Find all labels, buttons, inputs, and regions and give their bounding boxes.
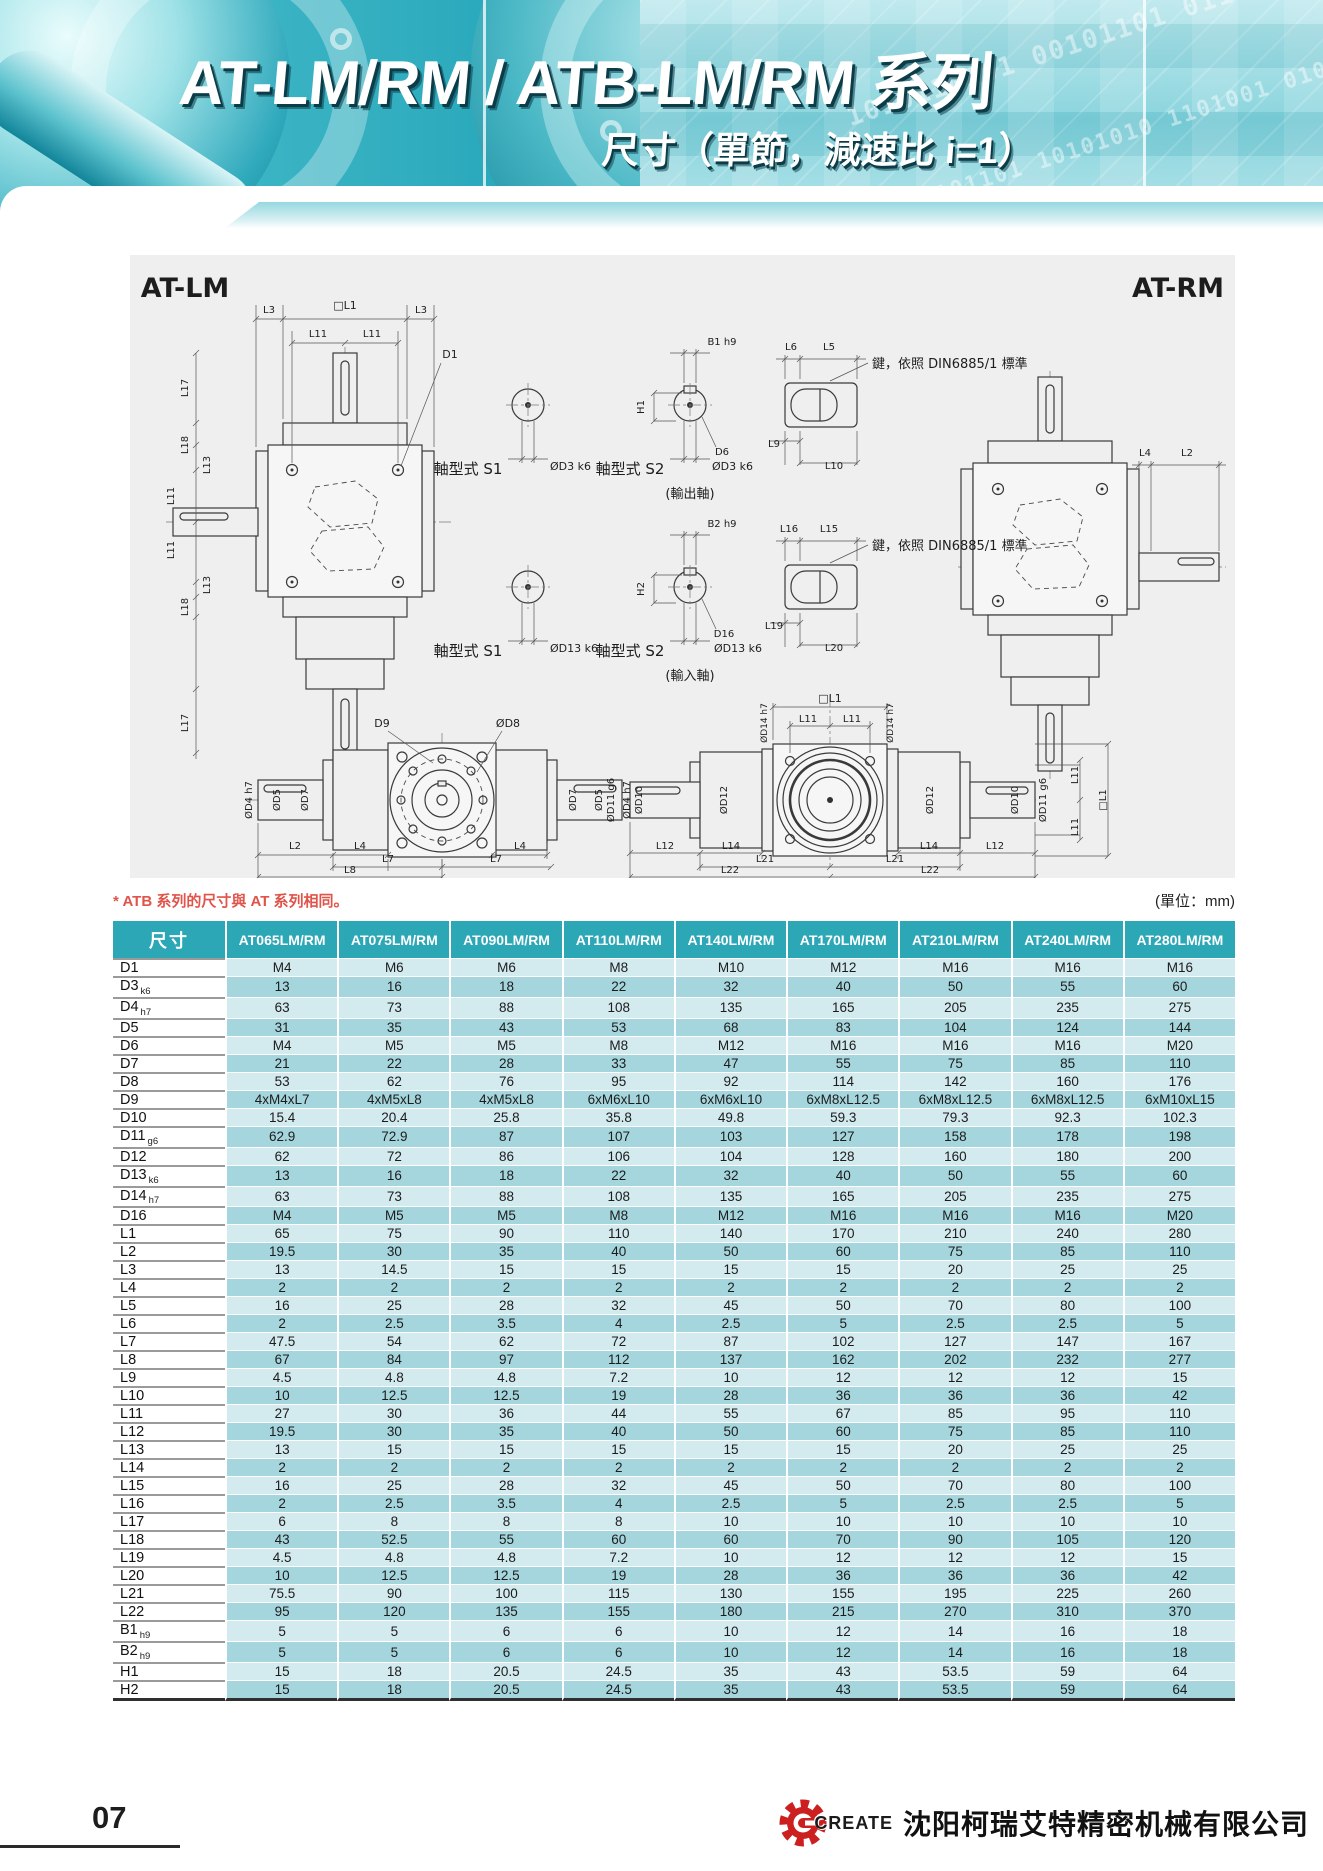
dimension-label: L4 <box>113 1278 225 1296</box>
dimension-value: 147 <box>1011 1332 1123 1350</box>
dimension-value: 5 <box>786 1494 898 1512</box>
dimension-value: 115 <box>562 1584 674 1602</box>
dimension-value: 128 <box>786 1147 898 1165</box>
dimension-value: 31 <box>225 1018 337 1036</box>
dimension-value: 55 <box>449 1530 561 1548</box>
dimension-value: 144 <box>1123 1018 1235 1036</box>
dimension-value: 8 <box>337 1512 449 1530</box>
table-row: L2295120135155180215270310370 <box>113 1602 1235 1620</box>
drawing-dim-label: □L1 <box>1098 789 1109 810</box>
dimension-value: 63 <box>225 1186 337 1207</box>
dimension-value: 162 <box>786 1350 898 1368</box>
dimension-value: 35 <box>449 1242 561 1260</box>
drawing-dim-label: L11 <box>363 329 381 340</box>
dimension-value: 50 <box>898 1165 1010 1186</box>
drawing-dim-label: L11 <box>799 714 817 725</box>
drawing-dim-label: 軸型式 S2 <box>596 642 665 660</box>
table-row: L1622.53.542.552.52.55 <box>113 1494 1235 1512</box>
dimension-value: 4 <box>562 1494 674 1512</box>
dimension-value: 54 <box>337 1332 449 1350</box>
dimension-value: 35 <box>674 1662 786 1680</box>
dimension-value: 3.5 <box>449 1494 561 1512</box>
drawing-dim-label: ØD7 <box>567 789 579 811</box>
table-row: D14h7637388108135165205235275 <box>113 1186 1235 1207</box>
dimension-value: 70 <box>898 1476 1010 1494</box>
dimension-value: 32 <box>562 1476 674 1494</box>
dimension-value: 32 <box>674 1165 786 1186</box>
dimension-value: 62.9 <box>225 1126 337 1147</box>
dimension-value: M8 <box>562 1036 674 1054</box>
dimension-value: 15 <box>337 1440 449 1458</box>
dimension-value: 5 <box>337 1620 449 1641</box>
dimension-value: 64 <box>1123 1680 1235 1701</box>
dimension-value: 90 <box>449 1224 561 1242</box>
dimension-value: M6 <box>337 958 449 976</box>
dimension-value: 60 <box>1123 976 1235 997</box>
shaft-section-input <box>506 531 716 645</box>
drawing-dim-label: L6 <box>785 342 797 353</box>
dimension-label: L20 <box>113 1566 225 1584</box>
dimension-value: 8 <box>449 1512 561 1530</box>
dimension-value: 30 <box>337 1404 449 1422</box>
dimension-value: 110 <box>1123 1404 1235 1422</box>
dimension-value: 4.8 <box>449 1368 561 1386</box>
dimension-value: 110 <box>1123 1422 1235 1440</box>
dimension-value: 28 <box>449 1476 561 1494</box>
dimension-label: D13k6 <box>113 1165 225 1186</box>
dimension-value: 18 <box>1123 1641 1235 1662</box>
dimension-value: 5 <box>1123 1314 1235 1332</box>
drawing-dim-label: L13 <box>202 576 213 594</box>
dimension-value: 16 <box>337 976 449 997</box>
table-row: D12627286106104128160180200 <box>113 1147 1235 1165</box>
atrm-front-view <box>958 371 1226 779</box>
dimension-value: 100 <box>449 1584 561 1602</box>
dimension-label: D8 <box>113 1072 225 1090</box>
dimension-label: L8 <box>113 1350 225 1368</box>
drawing-dim-label: 軸型式 S1 <box>434 460 503 478</box>
table-row: D4h7637388108135165205235275 <box>113 997 1235 1018</box>
dimension-value: 16 <box>1011 1620 1123 1641</box>
dimension-value: 85 <box>898 1404 1010 1422</box>
drawing-dim-label: L11 <box>1070 818 1081 836</box>
drawing-dim-label: D16 <box>714 629 734 640</box>
table-header-row: 尺寸AT065LM/RMAT075LM/RMAT090LM/RMAT110LM/… <box>113 921 1235 958</box>
dimension-value: 7.2 <box>562 1548 674 1566</box>
drawing-dim-label: ØD3 k6 <box>712 460 753 473</box>
dimension-value: 35 <box>337 1018 449 1036</box>
dimension-value: 25.8 <box>449 1108 561 1126</box>
dimension-value: 6xM8xL12.5 <box>898 1090 1010 1108</box>
dimension-label: D11g6 <box>113 1126 225 1147</box>
dimension-value: 4.8 <box>449 1548 561 1566</box>
col-header-model: AT090LM/RM <box>449 921 561 958</box>
drawing-dim-label: ØD5 <box>593 789 605 811</box>
dimension-value: 35 <box>674 1680 786 1701</box>
dimension-value: 15 <box>449 1440 561 1458</box>
dimension-label: L22 <box>113 1602 225 1620</box>
dimension-value: 198 <box>1123 1126 1235 1147</box>
dimension-value: 80 <box>1011 1296 1123 1314</box>
dimension-value: 12 <box>786 1548 898 1566</box>
dimension-value: 36 <box>786 1386 898 1404</box>
dimension-value: 178 <box>1011 1126 1123 1147</box>
dimension-label: D5 <box>113 1018 225 1036</box>
dimension-value: 103 <box>674 1126 786 1147</box>
dimension-label: L9 <box>113 1368 225 1386</box>
dimension-value: M16 <box>1011 958 1123 976</box>
dimension-value: 137 <box>674 1350 786 1368</box>
dimension-value: 2 <box>898 1278 1010 1296</box>
drawing-dim-label: L13 <box>202 456 213 474</box>
dimension-value: 2 <box>337 1278 449 1296</box>
drawing-dim-label: L11 <box>309 329 327 340</box>
dimension-value: 106 <box>562 1147 674 1165</box>
drawing-dim-label: ØD8 <box>496 717 520 730</box>
dimension-value: 21 <box>225 1054 337 1072</box>
table-row: L2175.590100115130155195225260 <box>113 1584 1235 1602</box>
dimension-value: 202 <box>898 1350 1010 1368</box>
dimension-value: 50 <box>674 1422 786 1440</box>
table-row: H2151820.524.5354353.55964 <box>113 1680 1235 1701</box>
table-row: L4222222222 <box>113 1278 1235 1296</box>
drawing-dim-label: ØD11 g6 <box>605 778 617 822</box>
dimension-label: L13 <box>113 1440 225 1458</box>
dimension-value: 6 <box>562 1641 674 1662</box>
dimension-value: 72.9 <box>337 1126 449 1147</box>
dimension-value: 73 <box>337 997 449 1018</box>
dimension-label: D14h7 <box>113 1186 225 1207</box>
dimension-value: 205 <box>898 997 1010 1018</box>
dimension-value: 36 <box>1011 1386 1123 1404</box>
dimension-value: 33 <box>562 1054 674 1072</box>
drawing-dim-label: B1 h9 <box>707 337 736 348</box>
dimension-value: M16 <box>898 1036 1010 1054</box>
dimension-value: 210 <box>898 1224 1010 1242</box>
dimension-value: 100 <box>1123 1296 1235 1314</box>
dimension-value: 260 <box>1123 1584 1235 1602</box>
drawing-dim-label: H1 <box>636 400 647 414</box>
dimension-value: 35 <box>449 1422 561 1440</box>
dimension-value: 18 <box>337 1680 449 1701</box>
dimension-value: 72 <box>337 1147 449 1165</box>
col-header-model: AT110LM/RM <box>562 921 674 958</box>
dimension-value: 60 <box>674 1530 786 1548</box>
dimension-value: 142 <box>898 1072 1010 1090</box>
dimension-value: 2 <box>1011 1458 1123 1476</box>
dimension-value: 155 <box>786 1584 898 1602</box>
dimension-value: 50 <box>898 976 1010 997</box>
drawing-dim-label: L12 <box>986 841 1004 852</box>
dimension-value: M12 <box>674 1206 786 1224</box>
table-row: B2h955661012141618 <box>113 1641 1235 1662</box>
dimension-value: 50 <box>786 1476 898 1494</box>
table-row: D85362769592114142160176 <box>113 1072 1235 1090</box>
table-row: L219.530354050607585110 <box>113 1242 1235 1260</box>
dimension-value: 10 <box>898 1512 1010 1530</box>
photo-seam <box>1143 0 1146 188</box>
dimension-value: 180 <box>1011 1147 1123 1165</box>
dimension-value: 3.5 <box>449 1314 561 1332</box>
dimension-label: L18 <box>113 1530 225 1548</box>
dimension-value: 160 <box>1011 1072 1123 1090</box>
drawing-dim-label: L3 <box>415 305 427 316</box>
dimension-value: M16 <box>1011 1036 1123 1054</box>
dimension-value: 63 <box>225 997 337 1018</box>
dimension-value: 15.4 <box>225 1108 337 1126</box>
dimension-value: 75 <box>898 1242 1010 1260</box>
dimension-value: 22 <box>562 1165 674 1186</box>
dimension-label: L14 <box>113 1458 225 1476</box>
table-row: H1151820.524.5354353.55964 <box>113 1662 1235 1680</box>
dimension-value: 16 <box>337 1165 449 1186</box>
drawing-dim-label: D9 <box>374 717 389 730</box>
drawing-dim-label: D1 <box>442 348 457 361</box>
dimension-value: 20.4 <box>337 1108 449 1126</box>
drawing-dim-label: L22 <box>721 865 739 876</box>
dimension-value: 72 <box>562 1332 674 1350</box>
dimension-value: 10 <box>674 1512 786 1530</box>
table-row: D13k6131618223240505560 <box>113 1165 1235 1186</box>
table-row: B1h955661012141618 <box>113 1620 1235 1641</box>
dimension-value: 112 <box>562 1350 674 1368</box>
dimension-value: 16 <box>1011 1641 1123 1662</box>
dimension-value: 87 <box>674 1332 786 1350</box>
dimension-value: 40 <box>562 1422 674 1440</box>
dimension-value: M5 <box>337 1206 449 1224</box>
dimension-value: 180 <box>674 1602 786 1620</box>
dimension-value: 105 <box>1011 1530 1123 1548</box>
table-row: D3k6131618223240505560 <box>113 976 1235 997</box>
dimension-value: 59.3 <box>786 1108 898 1126</box>
dimension-value: 127 <box>786 1126 898 1147</box>
dimension-value: 14 <box>898 1641 1010 1662</box>
dimension-value: 10 <box>674 1368 786 1386</box>
dimension-value: 2 <box>674 1458 786 1476</box>
dimension-value: 110 <box>562 1224 674 1242</box>
dimension-value: 10 <box>225 1566 337 1584</box>
table-row: L13131515151515202525 <box>113 1440 1235 1458</box>
dimension-value: 20.5 <box>449 1680 561 1701</box>
dimension-value: 12 <box>1011 1548 1123 1566</box>
drawing-dim-label: L12 <box>656 841 674 852</box>
dimension-value: 68 <box>674 1018 786 1036</box>
dimension-value: 5 <box>337 1641 449 1662</box>
dimension-label: L3 <box>113 1260 225 1278</box>
dimension-value: 13 <box>225 976 337 997</box>
dimension-value: M4 <box>225 1036 337 1054</box>
dimension-label: L6 <box>113 1314 225 1332</box>
drawing-dim-label: L4 <box>354 841 366 852</box>
drawing-dim-label: L4 <box>514 841 526 852</box>
dimension-value: 2 <box>1123 1278 1235 1296</box>
dimension-value: 12 <box>786 1620 898 1641</box>
dimension-value: 85 <box>1011 1422 1123 1440</box>
drawing-dim-label: L21 <box>756 854 774 865</box>
dimension-value: 95 <box>562 1072 674 1090</box>
dimension-value: 10 <box>225 1386 337 1404</box>
dimension-value: 40 <box>562 1242 674 1260</box>
dimension-value: 12 <box>786 1641 898 1662</box>
dimension-value: 12 <box>898 1548 1010 1566</box>
drawing-dim-label: ØD10 <box>1009 786 1021 814</box>
dimension-value: 15 <box>562 1260 674 1278</box>
dimension-label: D6 <box>113 1036 225 1054</box>
dimension-value: 62 <box>225 1147 337 1165</box>
dimension-value: 43 <box>786 1680 898 1701</box>
drawing-dim-label: L10 <box>825 461 843 472</box>
dimension-value: 2 <box>786 1278 898 1296</box>
drawing-dim-label: L4 <box>1139 448 1151 459</box>
dimension-label: L19 <box>113 1548 225 1566</box>
dimension-value: 2 <box>674 1278 786 1296</box>
page-subtitle: 尺寸（單節，減速比 i=1） <box>468 120 1037 174</box>
drawing-dim-label: 軸型式 S2 <box>596 460 665 478</box>
drawing-dim-label: □L1 <box>333 299 357 312</box>
dimension-value: 53 <box>562 1018 674 1036</box>
dimension-value: 16 <box>225 1296 337 1314</box>
dimension-value: M16 <box>1011 1206 1123 1224</box>
dimension-value: 25 <box>1011 1440 1123 1458</box>
dimension-value: 2 <box>562 1458 674 1476</box>
drawing-dim-label: ØD4 h7 <box>243 781 255 819</box>
dimension-label: L21 <box>113 1584 225 1602</box>
dimension-value: 370 <box>1123 1602 1235 1620</box>
drawing-dim-label: L2 <box>289 841 301 852</box>
dimension-value: 92.3 <box>1011 1108 1123 1126</box>
dimension-value: 6 <box>449 1641 561 1662</box>
dimension-value: 84 <box>337 1350 449 1368</box>
atlm-front-view <box>166 305 452 767</box>
dimension-label: D16 <box>113 1206 225 1224</box>
dimension-value: 13 <box>225 1440 337 1458</box>
dimension-value: 4xM5xL8 <box>449 1090 561 1108</box>
table-row: L201012.512.5192836363642 <box>113 1566 1235 1584</box>
dimension-value: 12 <box>1011 1368 1123 1386</box>
dimension-value: M4 <box>225 958 337 976</box>
dimension-value: 5 <box>1123 1494 1235 1512</box>
dimension-value: 158 <box>898 1126 1010 1147</box>
dimension-value: 165 <box>786 997 898 1018</box>
table-row: L151625283245507080100 <box>113 1476 1235 1494</box>
dimension-value: 102 <box>786 1332 898 1350</box>
col-header-model: AT240LM/RM <box>1011 921 1123 958</box>
dimension-value: M4 <box>225 1206 337 1224</box>
dimension-value: 30 <box>337 1242 449 1260</box>
dimension-value: 53 <box>225 1072 337 1090</box>
dimension-value: 80 <box>1011 1476 1123 1494</box>
dimension-value: 35.8 <box>562 1108 674 1126</box>
drawing-dim-label: ØD12 <box>924 786 936 814</box>
dimension-value: 235 <box>1011 1186 1123 1207</box>
dimension-value: 167 <box>1123 1332 1235 1350</box>
dimension-value: 42 <box>1123 1566 1235 1584</box>
page-number: 07 <box>92 1800 126 1836</box>
dimension-label: L16 <box>113 1494 225 1512</box>
dimension-value: 75 <box>898 1422 1010 1440</box>
dimension-value: 19.5 <box>225 1242 337 1260</box>
dimension-value: M20 <box>1123 1036 1235 1054</box>
dimension-label: L7 <box>113 1332 225 1350</box>
dimension-value: M12 <box>786 958 898 976</box>
company-name: 沈阳柯瑞艾特精密机械有限公司 <box>903 1803 1309 1843</box>
dimension-value: 205 <box>898 1186 1010 1207</box>
dimension-value: 2 <box>786 1458 898 1476</box>
drawing-dim-label: L18 <box>180 598 191 616</box>
dimension-value: 79.3 <box>898 1108 1010 1126</box>
table-row: L194.54.84.87.21012121215 <box>113 1548 1235 1566</box>
dimension-value: 2.5 <box>674 1314 786 1332</box>
dimension-value: 10 <box>674 1641 786 1662</box>
dimension-value: 67 <box>786 1404 898 1422</box>
dimension-value: 2.5 <box>674 1494 786 1512</box>
drawing-dim-label: L7 <box>490 854 502 865</box>
dimension-value: 28 <box>449 1296 561 1314</box>
dimension-label: L12 <box>113 1422 225 1440</box>
dimension-value: 49.8 <box>674 1108 786 1126</box>
col-header-model: AT210LM/RM <box>898 921 1010 958</box>
drawing-dim-label: L14 <box>722 841 740 852</box>
drawing-dim-label: L11 <box>166 541 177 559</box>
drawing-dim-label: H2 <box>636 582 647 596</box>
drawing-dim-label: ØD12 <box>718 786 730 814</box>
drawing-dim-label: L11 <box>843 714 861 725</box>
dimension-value: 70 <box>786 1530 898 1548</box>
dimension-value: 73 <box>337 1186 449 1207</box>
dimension-value: 10 <box>1011 1512 1123 1530</box>
dimension-value: 2 <box>1011 1278 1123 1296</box>
dimension-value: 22 <box>562 976 674 997</box>
dimension-value: 2 <box>898 1458 1010 1476</box>
col-header-model: AT075LM/RM <box>337 921 449 958</box>
dimension-value: 10 <box>1123 1512 1235 1530</box>
drawing-dim-label: ØD5 <box>271 789 283 811</box>
dimension-value: 24.5 <box>562 1680 674 1701</box>
dimension-value: 108 <box>562 997 674 1018</box>
dimension-value: 2.5 <box>337 1314 449 1332</box>
dimension-value: 22 <box>337 1054 449 1072</box>
dimension-value: 225 <box>1011 1584 1123 1602</box>
dimension-value: 2 <box>225 1278 337 1296</box>
dimension-value: 86 <box>449 1147 561 1165</box>
dimension-value: 15 <box>674 1440 786 1458</box>
dimension-value: M6 <box>449 958 561 976</box>
dimension-value: 6 <box>449 1620 561 1641</box>
dimension-value: 36 <box>449 1404 561 1422</box>
dimension-value: 18 <box>449 1165 561 1186</box>
dimension-value: 135 <box>449 1602 561 1620</box>
drawing-dim-label: 鍵，依照 DIN6885/1 標準 <box>872 538 1028 554</box>
dimension-value: 55 <box>674 1404 786 1422</box>
table-row: L14222222222 <box>113 1458 1235 1476</box>
dimension-label: L15 <box>113 1476 225 1494</box>
dimension-value: 275 <box>1123 997 1235 1018</box>
dimension-value: 5 <box>225 1620 337 1641</box>
dimension-value: 15 <box>786 1440 898 1458</box>
dimension-value: 200 <box>1123 1147 1235 1165</box>
dimension-drawing: AT-LMAT-RML3□L1L3L11L11D1L17L18L13L11L11… <box>130 255 1235 878</box>
dimension-value: 4.8 <box>337 1368 449 1386</box>
drawing-dim-label: AT-LM <box>141 273 230 304</box>
dimension-value: 195 <box>898 1584 1010 1602</box>
dimension-value: 6xM6xL10 <box>562 1090 674 1108</box>
col-header-model: AT170LM/RM <box>786 921 898 958</box>
dimension-value: 4xM4xL7 <box>225 1090 337 1108</box>
dimension-label: H1 <box>113 1662 225 1680</box>
dimension-value: 108 <box>562 1186 674 1207</box>
drawing-dim-label: L3 <box>263 305 275 316</box>
drawing-dim-label: 鍵，依照 DIN6885/1 標準 <box>872 356 1028 372</box>
